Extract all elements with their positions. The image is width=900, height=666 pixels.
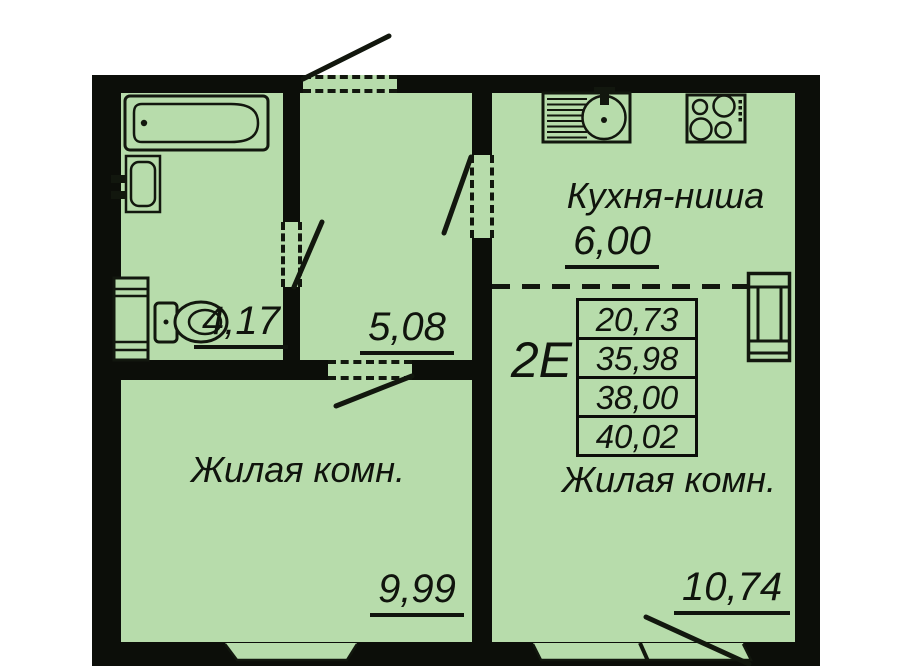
bathroom-area-value: 4,17 [194, 300, 288, 349]
kitchen-door-opening [470, 155, 494, 238]
living-room-right-area: 10,74 [674, 566, 790, 615]
floor-plan: Кухня-ниша 6,00 4,17 5,08 2Е 20,73 35,98… [0, 0, 900, 666]
entrance-door-swing [303, 36, 389, 79]
area-table-row: 35,98 [576, 337, 698, 379]
unit-type-label: 2Е [496, 334, 572, 387]
bathroom-area: 4,17 [194, 300, 286, 349]
area-table: 20,73 35,98 38,00 40,02 [576, 298, 698, 457]
wall-top [92, 75, 820, 93]
area-table-row: 40,02 [576, 415, 698, 457]
living-room-left-area: 9,99 [370, 568, 464, 617]
kitchen-niche-label: Кухня-ниша [558, 176, 773, 216]
kitchen-niche-dashed-boundary [492, 284, 748, 289]
living-room-left-label: Жилая комн. [190, 450, 406, 490]
living-room-right-area-value: 10,74 [674, 566, 790, 615]
wall-left [92, 75, 121, 666]
hallway-area-value: 5,08 [360, 306, 454, 355]
kitchen-niche-area: 6,00 [560, 220, 664, 269]
area-table-row: 38,00 [576, 376, 698, 418]
living-room-door-opening [328, 360, 412, 380]
wall-hallway [121, 360, 472, 380]
entrance-opening [303, 75, 397, 93]
kitchen-niche-area-value: 6,00 [565, 220, 659, 269]
living-room-left-area-value: 9,99 [370, 568, 464, 617]
bathroom-door-opening [281, 222, 302, 287]
wall-bottom [92, 642, 820, 666]
hallway-area: 5,08 [355, 306, 459, 355]
wall-right [795, 75, 820, 666]
area-table-row: 20,73 [576, 298, 698, 340]
living-room-right-label: Жилая комн. [560, 460, 778, 500]
